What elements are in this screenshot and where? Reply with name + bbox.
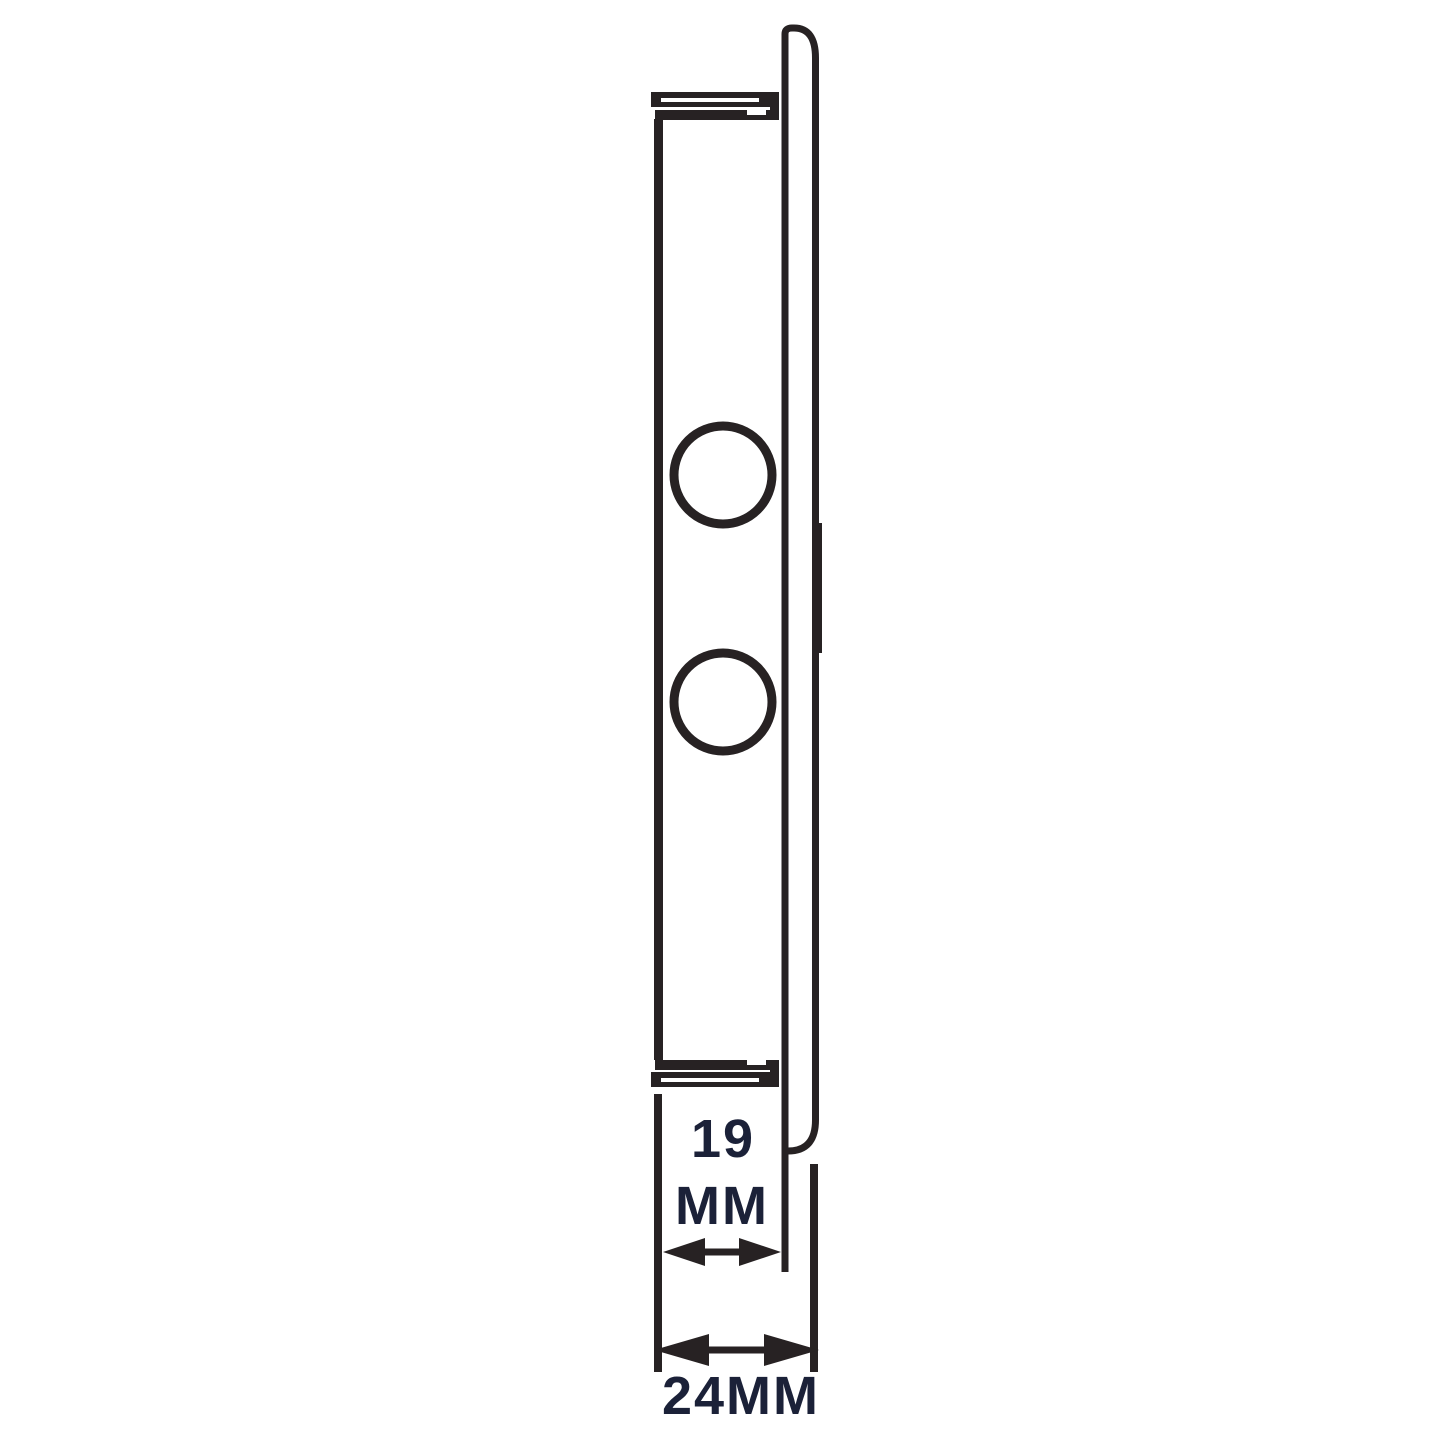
faceplate-ridge bbox=[813, 523, 822, 653]
dim-label-24: 24MM bbox=[641, 1369, 841, 1423]
dim-arrow-19 bbox=[663, 1238, 781, 1266]
bottom-clip-connector bbox=[770, 1060, 779, 1087]
top-clip-connector bbox=[770, 92, 779, 120]
bottom-clip-notch bbox=[747, 1060, 766, 1065]
screw-hole-lower bbox=[674, 653, 772, 751]
top-clip-slot bbox=[661, 98, 759, 102]
dim-arrow-24 bbox=[654, 1334, 819, 1366]
dim-label-19-value: 19 bbox=[623, 1112, 823, 1166]
bottom-clip bbox=[651, 1060, 779, 1087]
diagram-canvas: 19 MM 24MM bbox=[0, 0, 1445, 1445]
top-clip-notch bbox=[747, 110, 766, 115]
bottom-clip-slot bbox=[661, 1078, 759, 1082]
faceplate-outline bbox=[785, 28, 816, 1151]
screw-hole-upper bbox=[674, 426, 772, 524]
dim-label-19-unit: MM bbox=[622, 1179, 822, 1233]
top-clip bbox=[651, 92, 779, 120]
